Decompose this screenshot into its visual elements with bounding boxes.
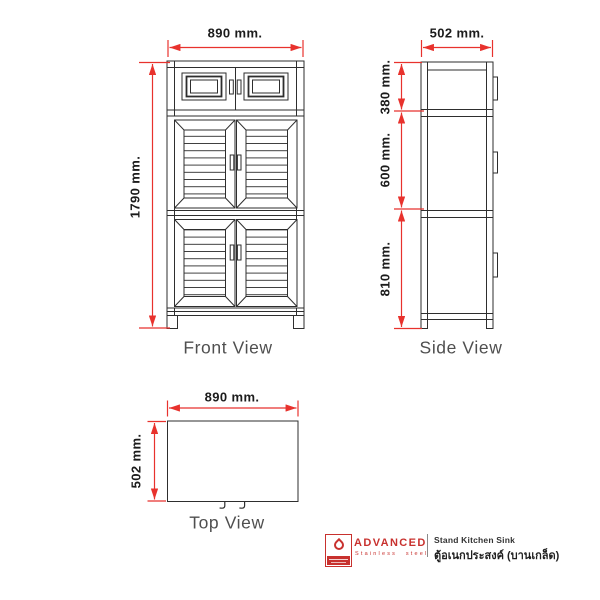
footer-divider: [427, 534, 428, 558]
door-handle: [230, 155, 234, 170]
top-depth-dimension: 502 mm.: [129, 434, 144, 489]
flame-drop-icon: [331, 537, 345, 551]
front-height-dimension: 1790 mm.: [128, 156, 143, 218]
cabinet-leg: [294, 316, 305, 329]
front-view-label: Front View: [183, 338, 272, 359]
technical-drawing-page: 890 mm. 1790 mm. 502 mm. 380 mm. 600 mm.…: [0, 0, 600, 600]
cabinet-leg: [487, 320, 494, 329]
front-bottom-louver-doors: [175, 220, 298, 307]
door-handle: [237, 80, 241, 94]
front-view-cabinet: [167, 61, 304, 329]
brand-logo: [325, 534, 352, 567]
brand-tagline: Stainless steel: [355, 551, 428, 557]
drawing-linework: [0, 0, 600, 600]
side-top-section-dimension: 380 mm.: [378, 60, 393, 115]
cabinet-leg: [167, 316, 178, 329]
logo-text-band: [327, 556, 350, 565]
side-view-label: Side View: [420, 338, 503, 359]
door-handle: [230, 245, 234, 260]
brand-name: ADVANCED: [354, 537, 427, 549]
front-top-doors: [182, 68, 288, 111]
top-view-label: Top View: [189, 513, 265, 534]
cabinet-leg: [421, 320, 428, 329]
top-view-handle: [239, 502, 244, 509]
door-handle: [237, 155, 241, 170]
product-name-th: ตู้อเนกประสงค์ (บานเกล็ด): [434, 546, 559, 564]
top-view-outline: [168, 421, 299, 508]
front-middle-louver-doors: [175, 120, 298, 208]
door-handle: [237, 245, 241, 260]
side-view-cabinet: [421, 62, 498, 329]
side-door-handle: [493, 77, 498, 100]
side-bottom-section-dimension: 810 mm.: [378, 242, 393, 297]
side-door-handle: [493, 152, 498, 173]
top-width-dimension: 890 mm.: [205, 390, 260, 405]
side-depth-dimension: 502 mm.: [430, 26, 485, 41]
top-view-handle: [220, 502, 225, 509]
side-door-handle: [493, 253, 498, 277]
product-name-en: Stand Kitchen Sink: [434, 535, 515, 545]
front-width-dimension: 890 mm.: [208, 26, 263, 41]
door-handle: [230, 80, 234, 94]
side-middle-section-dimension: 600 mm.: [378, 133, 393, 188]
